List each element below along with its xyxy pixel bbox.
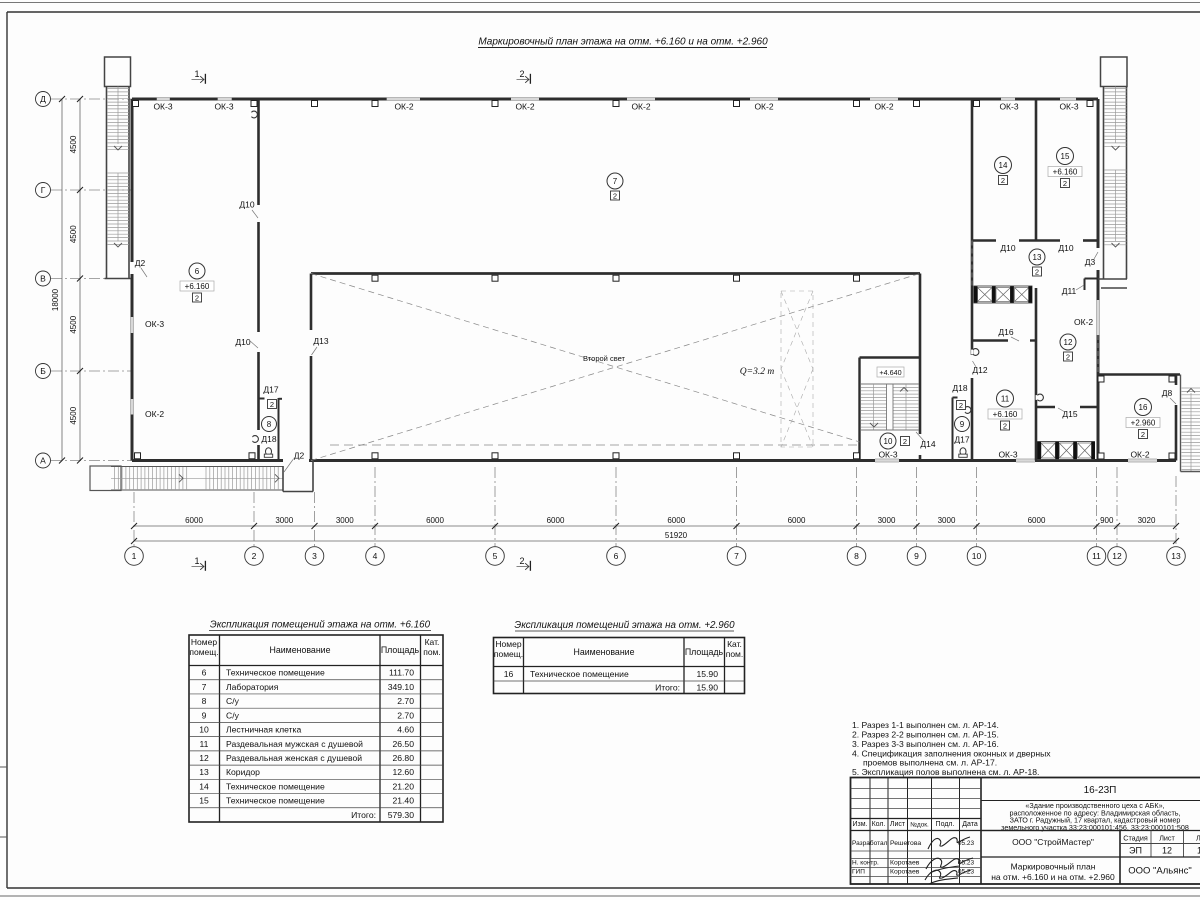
- svg-text:ОК-3: ОК-3: [998, 450, 1017, 460]
- svg-text:В: В: [40, 274, 46, 284]
- svg-text:16: 16: [504, 669, 514, 679]
- svg-text:Лист: Лист: [890, 821, 906, 828]
- svg-text:ОК-2: ОК-2: [631, 102, 650, 112]
- svg-text:2: 2: [1063, 179, 1067, 188]
- svg-text:Маркировочный план этажа на от: Маркировочный план этажа на отм. +6.160 …: [478, 37, 768, 48]
- svg-text:Площадь: Площадь: [685, 647, 724, 657]
- svg-text:Д18: Д18: [952, 383, 967, 393]
- svg-text:помещ.: помещ.: [189, 647, 218, 657]
- svg-text:ОК-3: ОК-3: [999, 102, 1018, 112]
- svg-text:ОК-2: ОК-2: [394, 102, 413, 112]
- svg-text:18000: 18000: [51, 288, 60, 311]
- svg-text:6000: 6000: [788, 516, 806, 525]
- svg-text:2: 2: [1003, 422, 1007, 431]
- svg-text:ОК-2: ОК-2: [515, 102, 534, 112]
- svg-text:Техническое помещение: Техническое помещение: [226, 796, 325, 806]
- svg-text:15.90: 15.90: [696, 669, 718, 679]
- svg-text:Д10: Д10: [1058, 243, 1073, 253]
- svg-text:15: 15: [199, 796, 209, 806]
- svg-text:5. Экспликация полов выполнена: 5. Экспликация полов выполнена см. л. АР…: [852, 767, 1039, 777]
- svg-text:11: 11: [200, 739, 209, 749]
- svg-text:Экспликация помещений этажа на: Экспликация помещений этажа на отм. +6.1…: [210, 620, 431, 631]
- svg-text:10: 10: [199, 725, 209, 735]
- svg-text:на отм. +6.160 и на отм. +2.96: на отм. +6.160 и на отм. +2.960: [991, 872, 1115, 882]
- svg-text:Д12: Д12: [972, 365, 987, 375]
- svg-text:Техническое помещение: Техническое помещение: [226, 781, 325, 791]
- svg-text:6: 6: [614, 551, 619, 561]
- svg-text:1: 1: [132, 551, 137, 561]
- svg-text:8: 8: [267, 420, 272, 429]
- svg-text:10: 10: [972, 551, 982, 561]
- svg-text:Н. контр.: Н. контр.: [852, 860, 879, 867]
- svg-text:14: 14: [999, 161, 1008, 170]
- svg-text:Маркировочный план: Маркировочный план: [1011, 862, 1096, 872]
- svg-text:6000: 6000: [1028, 516, 1046, 525]
- svg-text:Итого:: Итого:: [351, 810, 376, 820]
- svg-text:2: 2: [1066, 353, 1070, 362]
- svg-text:26.80: 26.80: [392, 753, 414, 763]
- svg-text:4: 4: [373, 551, 378, 561]
- svg-text:Д13: Д13: [313, 336, 328, 346]
- svg-text:11: 11: [1092, 551, 1101, 561]
- svg-text:Номер: Номер: [495, 639, 521, 649]
- svg-text:12: 12: [1064, 338, 1073, 347]
- svg-text:2. Разрез 2-2 выполнен см. л.: 2. Разрез 2-2 выполнен см. л. АР-15.: [852, 730, 999, 740]
- svg-text:Кат.: Кат.: [425, 637, 440, 647]
- svg-text:Дата: Дата: [962, 821, 978, 828]
- svg-text:Кол.: Кол.: [872, 821, 886, 828]
- svg-text:10: 10: [884, 437, 893, 446]
- svg-text:Д17: Д17: [263, 385, 278, 395]
- svg-text:+6.160: +6.160: [1053, 168, 1078, 177]
- svg-text:7: 7: [613, 177, 618, 186]
- svg-text:ООО "Альянс": ООО "Альянс": [1128, 866, 1192, 877]
- svg-text:12: 12: [199, 753, 209, 763]
- svg-text:3000: 3000: [336, 516, 354, 525]
- svg-text:6000: 6000: [667, 516, 685, 525]
- svg-text:Кат.: Кат.: [727, 639, 742, 649]
- svg-text:Подл.: Подл.: [936, 821, 955, 828]
- svg-text:4500: 4500: [69, 406, 78, 424]
- svg-text:1. Разрез 1-1 выполнен см. л.: 1. Разрез 1-1 выполнен см. л. АР-14.: [852, 720, 999, 730]
- svg-text:ОК-2: ОК-2: [874, 102, 893, 112]
- svg-text:Экспликация помещений этажа на: Экспликация помещений этажа на отм. +2.9…: [514, 620, 735, 631]
- svg-text:2: 2: [252, 551, 257, 561]
- svg-text:ОК-2: ОК-2: [1130, 450, 1149, 460]
- svg-text:3020: 3020: [1138, 516, 1156, 525]
- svg-text:2: 2: [959, 401, 963, 410]
- svg-text:+6.160: +6.160: [993, 410, 1018, 419]
- svg-text:13: 13: [199, 767, 209, 777]
- svg-text:15.90: 15.90: [696, 683, 718, 693]
- svg-text:Д2: Д2: [294, 451, 305, 461]
- svg-text:пом.: пом.: [423, 647, 441, 657]
- svg-text:14: 14: [199, 781, 209, 791]
- svg-text:Д11: Д11: [1062, 286, 1077, 296]
- svg-text:ГИП: ГИП: [852, 869, 865, 876]
- svg-text:3. Разрез 3-3 выполнен см. л.: 3. Разрез 3-3 выполнен см. л. АР-16.: [852, 739, 999, 749]
- svg-text:13: 13: [1033, 253, 1042, 262]
- svg-text:Итого:: Итого:: [655, 683, 680, 693]
- svg-text:21.20: 21.20: [392, 781, 414, 791]
- svg-text:Разработал: Разработал: [852, 839, 888, 847]
- svg-text:2: 2: [1001, 176, 1005, 185]
- svg-text:ОК-2: ОК-2: [145, 409, 164, 419]
- svg-text:16: 16: [1139, 403, 1148, 412]
- svg-text:Д15: Д15: [1062, 409, 1077, 419]
- svg-text:21.40: 21.40: [392, 796, 414, 806]
- svg-text:помещ.: помещ.: [494, 649, 523, 659]
- svg-text:6: 6: [195, 267, 200, 276]
- svg-text:26.50: 26.50: [392, 739, 414, 749]
- svg-text:12: 12: [1162, 846, 1172, 856]
- svg-text:4.60: 4.60: [397, 725, 414, 735]
- svg-text:Раздевальная женская с душевой: Раздевальная женская с душевой: [226, 753, 362, 763]
- svg-text:349.10: 349.10: [388, 682, 415, 692]
- svg-text:6000: 6000: [547, 516, 565, 525]
- svg-text:7: 7: [202, 682, 207, 692]
- svg-text:Решетова: Решетова: [890, 840, 921, 847]
- svg-text:4500: 4500: [69, 135, 78, 153]
- svg-text:ОК-3: ОК-3: [878, 450, 897, 460]
- svg-text:Д14: Д14: [920, 439, 935, 449]
- svg-text:7: 7: [734, 551, 739, 561]
- svg-text:6000: 6000: [426, 516, 444, 525]
- svg-text:Д: Д: [40, 94, 46, 104]
- svg-text:9: 9: [914, 551, 919, 561]
- svg-text:2: 2: [195, 294, 199, 303]
- svg-text:Лист: Лист: [1159, 834, 1175, 843]
- svg-text:Д10: Д10: [1000, 243, 1015, 253]
- svg-text:А: А: [40, 456, 46, 466]
- svg-text:9: 9: [960, 420, 965, 429]
- svg-text:111.70: 111.70: [389, 668, 414, 678]
- svg-text:Изм.: Изм.: [853, 821, 868, 828]
- svg-text:+4.640: +4.640: [879, 368, 901, 377]
- svg-text:Наименование: Наименование: [574, 647, 635, 657]
- svg-text:Б: Б: [40, 366, 46, 376]
- svg-text:2: 2: [270, 400, 274, 409]
- svg-text:4500: 4500: [69, 225, 78, 243]
- svg-text:Г: Г: [41, 185, 46, 195]
- svg-text:Второй свет: Второй свет: [583, 354, 625, 363]
- svg-text:Раздевальная мужская с душевой: Раздевальная мужская с душевой: [226, 739, 363, 749]
- svg-text:ОК-2: ОК-2: [1074, 317, 1093, 327]
- svg-text:15: 15: [1061, 152, 1070, 161]
- svg-text:Площадь: Площадь: [381, 645, 420, 655]
- svg-text:Коротаев: Коротаев: [890, 869, 920, 876]
- svg-text:Д2: Д2: [135, 258, 146, 268]
- svg-text:6: 6: [202, 668, 207, 678]
- svg-text:ОК-3: ОК-3: [145, 319, 164, 329]
- svg-text:8: 8: [854, 551, 859, 561]
- svg-text:Коротаев: Коротаев: [890, 860, 920, 867]
- svg-text:ОК-3: ОК-3: [1059, 102, 1078, 112]
- svg-text:900: 900: [1100, 516, 1114, 525]
- svg-text:12: 12: [1112, 551, 1122, 561]
- svg-text:+2.960: +2.960: [1131, 419, 1156, 428]
- svg-text:13: 13: [1171, 551, 1181, 561]
- svg-text:2: 2: [1141, 430, 1145, 439]
- svg-text:№док.: №док.: [910, 822, 929, 829]
- svg-text:1: 1: [194, 556, 199, 566]
- svg-text:Д8: Д8: [1162, 388, 1173, 398]
- svg-text:2.70: 2.70: [397, 696, 414, 706]
- svg-text:51920: 51920: [665, 531, 688, 540]
- svg-text:Д17: Д17: [954, 435, 969, 445]
- svg-text:Наименование: Наименование: [270, 645, 331, 655]
- svg-text:9: 9: [202, 710, 207, 720]
- svg-text:3000: 3000: [878, 516, 896, 525]
- svg-text:16-23П: 16-23П: [1084, 785, 1117, 796]
- svg-text:2: 2: [903, 437, 907, 446]
- svg-text:12.60: 12.60: [392, 767, 414, 777]
- svg-text:С/у: С/у: [226, 696, 240, 706]
- svg-text:4500: 4500: [69, 315, 78, 333]
- svg-text:2: 2: [519, 69, 524, 79]
- svg-text:пом.: пом.: [726, 649, 744, 659]
- svg-text:5: 5: [493, 551, 498, 561]
- svg-text:3000: 3000: [938, 516, 956, 525]
- svg-text:Номер: Номер: [191, 637, 217, 647]
- svg-text:Д10: Д10: [235, 337, 250, 347]
- svg-text:+6.160: +6.160: [185, 282, 210, 291]
- svg-text:проемов выполнена см. л. АР-17: проемов выполнена см. л. АР-17.: [863, 758, 997, 768]
- svg-text:ООО "СтройМастер": ООО "СтройМастер": [1012, 837, 1094, 847]
- svg-text:Лис: Лис: [1196, 834, 1200, 843]
- svg-text:2: 2: [1035, 268, 1039, 277]
- svg-text:ЭП: ЭП: [1129, 846, 1142, 856]
- svg-text:3000: 3000: [275, 516, 293, 525]
- svg-text:ОК-3: ОК-3: [153, 102, 172, 112]
- svg-text:1: 1: [194, 69, 199, 79]
- svg-text:Д10: Д10: [239, 200, 254, 210]
- svg-text:Техническое помещение: Техническое помещение: [226, 668, 325, 678]
- svg-text:Техническое помещение: Техническое помещение: [530, 669, 629, 679]
- svg-text:2: 2: [613, 192, 617, 201]
- svg-text:3: 3: [312, 551, 317, 561]
- svg-text:Стадия: Стадия: [1123, 834, 1148, 843]
- svg-text:ОК-3: ОК-3: [214, 102, 233, 112]
- svg-text:Лестничная клетка: Лестничная клетка: [226, 725, 301, 735]
- svg-text:Д18: Д18: [261, 434, 276, 444]
- svg-text:11: 11: [1001, 394, 1010, 403]
- svg-text:Лаборатория: Лаборатория: [226, 682, 279, 692]
- svg-text:С/у: С/у: [226, 710, 240, 720]
- svg-text:2: 2: [519, 556, 524, 566]
- svg-text:Д16: Д16: [998, 327, 1013, 337]
- svg-text:Q=3.2 т: Q=3.2 т: [740, 367, 775, 377]
- svg-text:6000: 6000: [185, 516, 203, 525]
- svg-text:2.70: 2.70: [397, 710, 414, 720]
- svg-text:ОК-2: ОК-2: [754, 102, 773, 112]
- svg-text:8: 8: [202, 696, 207, 706]
- svg-text:579.30: 579.30: [388, 810, 415, 820]
- svg-text:Коридор: Коридор: [226, 767, 260, 777]
